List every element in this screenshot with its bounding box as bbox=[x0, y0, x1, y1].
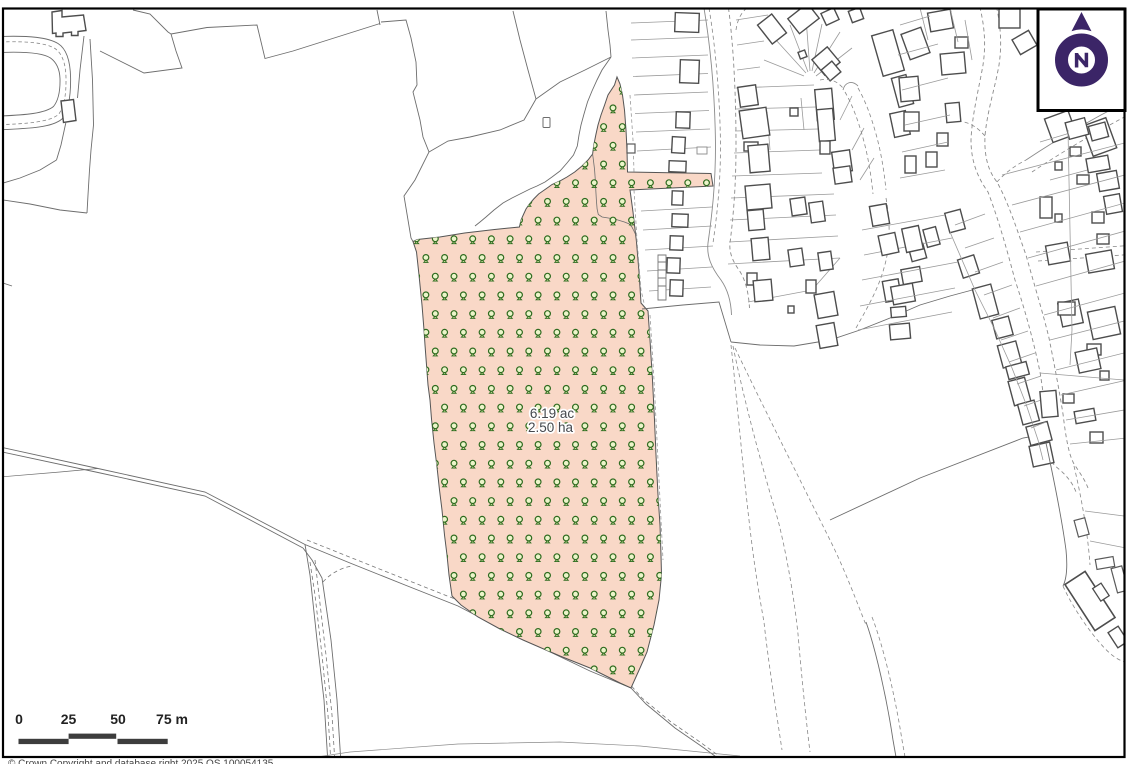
svg-text:50: 50 bbox=[110, 711, 126, 727]
svg-text:© Crown Copyright and database: © Crown Copyright and database right 202… bbox=[8, 759, 274, 764]
svg-text:6.19 ac: 6.19 ac bbox=[530, 406, 575, 421]
svg-text:2.50 ha: 2.50 ha bbox=[528, 420, 574, 435]
svg-text:75 m: 75 m bbox=[156, 711, 188, 727]
svg-text:25: 25 bbox=[61, 711, 77, 727]
svg-text:0: 0 bbox=[15, 711, 23, 727]
